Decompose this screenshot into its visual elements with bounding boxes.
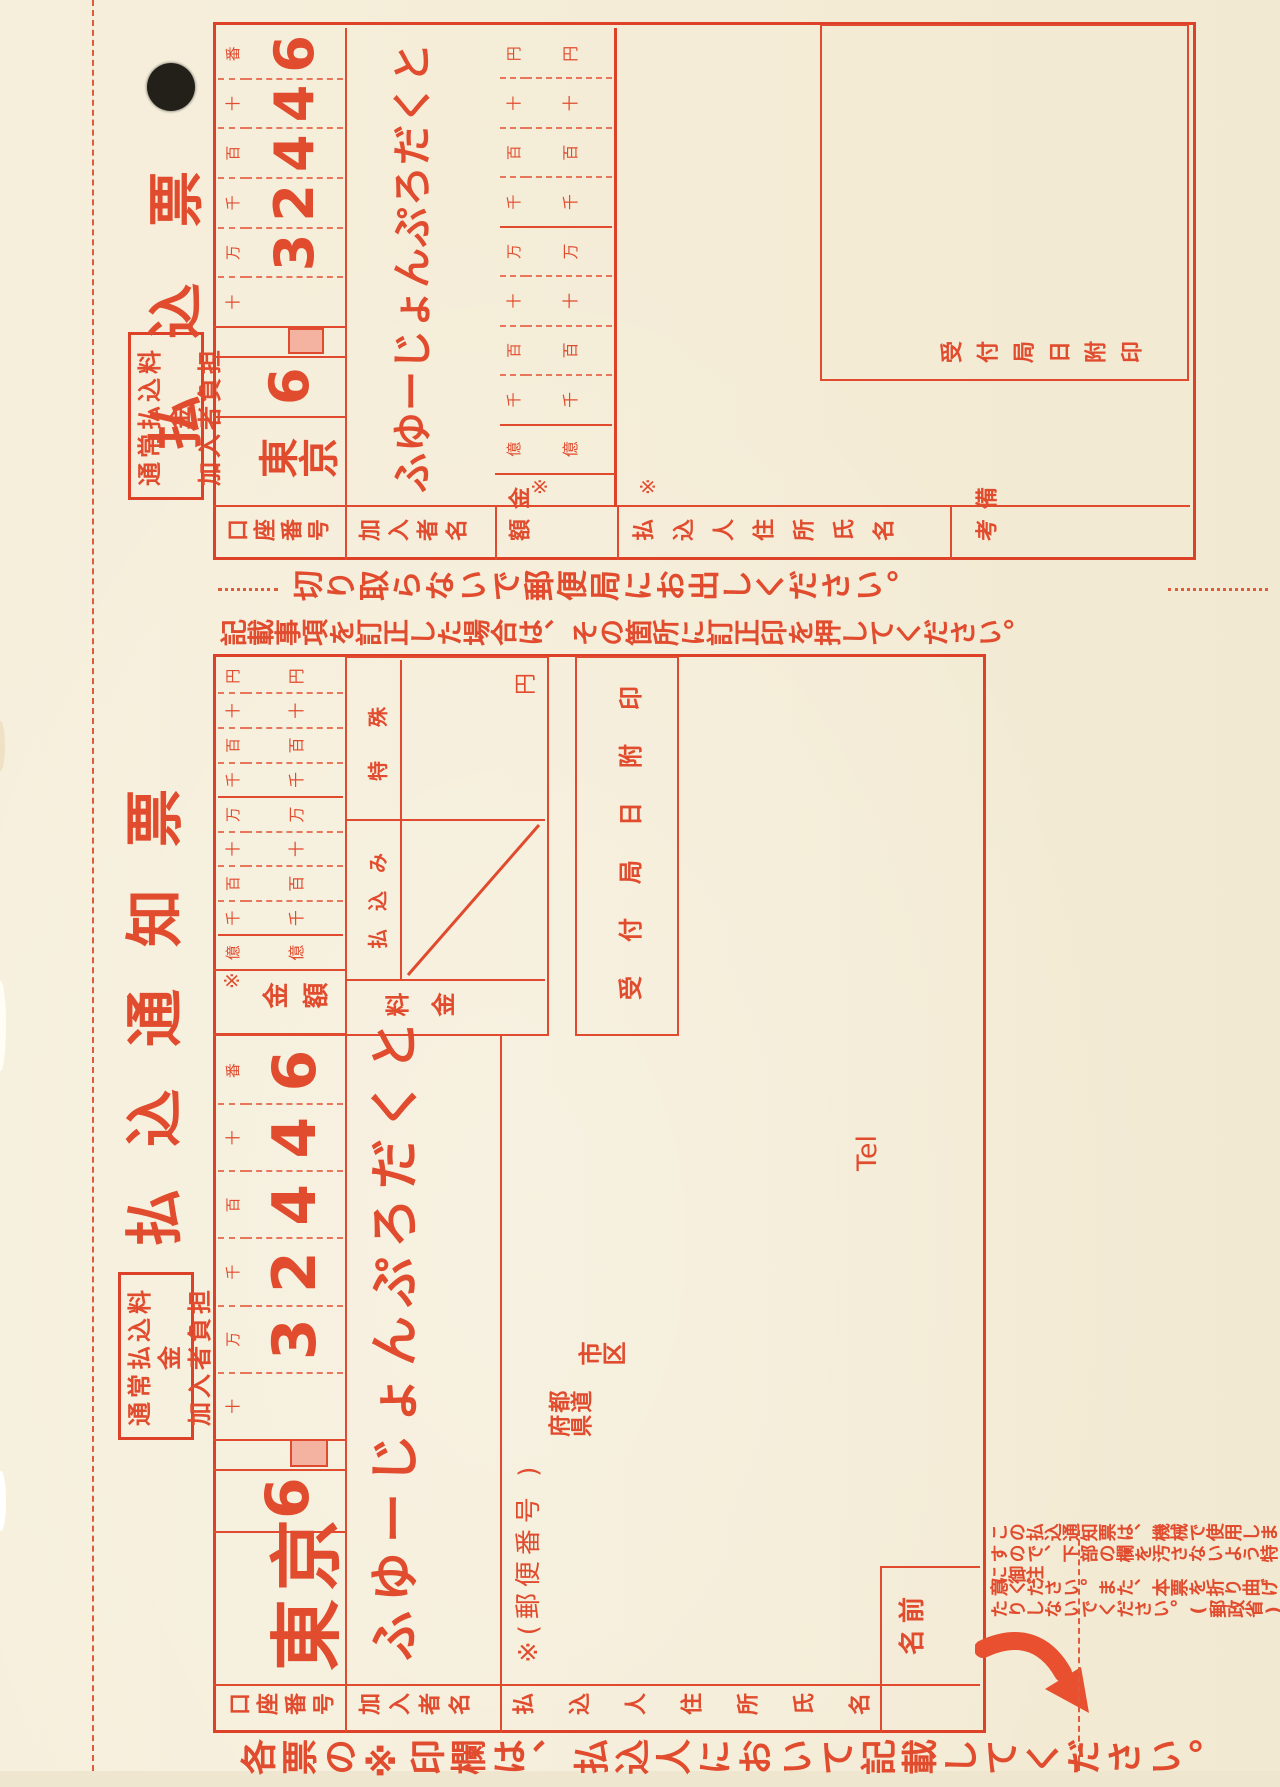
left-label-account: 口座番号	[228, 1691, 340, 1723]
machine-notice-line1: この払込通知票は、機械で使用しますので、下部の欄を汚さないよう特に御注	[990, 1523, 1280, 1587]
torn-edge-mark1	[0, 1471, 6, 1531]
right-account-prefix: 6	[258, 367, 321, 405]
right-amt-b1	[495, 473, 615, 475]
right-label-account: 口座番号	[226, 517, 341, 549]
scanned-payment-form-page: { "ink_color": "#e14b2e", "paper_color":…	[0, 0, 1280, 1771]
left-acct-b2	[213, 1469, 345, 1471]
perf-dots-top	[218, 588, 278, 591]
torn-edge-mark3	[0, 721, 5, 771]
left-acct-b1	[213, 1531, 345, 1533]
fill-note: 各票の※印欄は、払込人において記載してください。	[240, 1735, 1270, 1787]
right-strip-div3	[617, 507, 619, 560]
left-account-separator-box	[290, 1439, 328, 1467]
right-label-subscriber: 加入者名	[358, 517, 490, 549]
right-label-amount: 金 額	[508, 485, 612, 549]
left-fee-b1	[345, 979, 545, 981]
punch-hole	[147, 63, 195, 111]
transfer-form-sheet: 通常払込料金 加入者負担 払込通知票 口座番号 加入者名 払込人住所氏名 東京 …	[0, 0, 1280, 1771]
left-name-cell-topline	[880, 1566, 882, 1733]
left-city: 市区	[578, 1338, 638, 1373]
right-strip-div1	[345, 507, 347, 560]
ministry-credit: (郵政省)	[1188, 1600, 1280, 1621]
left-acct-b3	[213, 1439, 345, 1441]
right-account-place-headers: 十万千百十番	[218, 30, 246, 326]
left-slip-title: 払込通知票	[108, 747, 192, 1247]
left-account-office: 東京	[248, 1511, 353, 1671]
left-label-strip-divider2	[500, 1686, 502, 1733]
right-label-payer: 払込人住所氏名	[632, 517, 942, 549]
left-special-yen: 円	[508, 673, 540, 695]
left-prefecture: 都道府県	[548, 1393, 612, 1441]
left-label-strip-border	[213, 1684, 980, 1686]
right-acct-b2	[213, 356, 345, 358]
right-acct-b1	[213, 416, 345, 418]
left-account-digits[interactable]: 32446	[246, 1038, 343, 1439]
left-tel[interactable]: Tel	[852, 1135, 883, 1171]
left-label-strip-divider	[345, 1686, 347, 1733]
left-fee-b2	[345, 819, 545, 821]
right-amount-place-headers: 億千百十万千百十円	[500, 30, 526, 473]
right-account-office: 東京	[258, 433, 348, 491]
right-account-digits[interactable]: 32446	[246, 30, 343, 326]
right-strip-div4	[950, 507, 952, 560]
left-payer-topline	[500, 1036, 502, 1686]
left-stamp-box[interactable]: 受付局日附印	[575, 656, 679, 1036]
right-amount-input-boxes[interactable]: 億千百十万千百十円	[526, 30, 612, 473]
left-name-label[interactable]: 名前	[892, 1591, 929, 1655]
left-account-prefix: 6	[253, 1477, 323, 1519]
perforation-notice-text: 切り取らないで郵便局にお出しください。	[292, 571, 919, 607]
left-amount-input-boxes[interactable]: 億千百十万千百十円	[246, 660, 343, 969]
right-account-separator-box	[288, 328, 324, 354]
diagonal-slash	[402, 821, 543, 979]
left-amt-border	[213, 1033, 345, 1036]
left-amount-place-headers: 億千百十万千百十円	[218, 660, 246, 969]
left-amt-border2	[213, 969, 345, 971]
left-subscriber-name: ふゆーじょんぷろだくと	[355, 1012, 427, 1661]
perforation-notice: 切り取らないで郵便局にお出しください。	[292, 566, 1152, 611]
right-label-remarks: 備 考	[975, 485, 1175, 549]
left-label-payment: 払込み	[362, 835, 391, 949]
perf-dots-bottom	[1168, 588, 1268, 591]
attention-arrow-icon	[975, 1629, 1095, 1729]
left-label-special: 特殊	[362, 673, 391, 781]
left-label-amount: 金額	[262, 979, 352, 1016]
left-stamp-label: 受付局日附印	[611, 658, 646, 1000]
fee-box-left-line2: 加入者負担	[185, 1281, 215, 1431]
fee-box-left: 通常払込料金 加入者負担	[118, 1272, 194, 1440]
torn-edge-mark2	[0, 981, 6, 1071]
correction-notice: 記載事項を訂正した場合は、その箇所に訂正印を押してください。	[220, 616, 1180, 655]
right-slip-title: 払込票	[132, 115, 213, 451]
right-stamp-box[interactable]: 受付局日附印	[820, 24, 1189, 381]
machine-notice-line2: 意ください。また、本票を折り曲げたりしないでください。(郵政省)	[990, 1579, 1280, 1621]
left-account-place-headers: 十万千百十番	[218, 1038, 246, 1439]
right-subscriber-name: ふゆーじょんぷろだくと	[380, 42, 438, 493]
top-tear-line	[92, 0, 94, 1771]
left-label-fee: 料金	[385, 989, 505, 1024]
right-amount-asterisk: ※	[528, 478, 552, 495]
right-stamp-label: 受付局日附印	[940, 339, 1180, 371]
left-label-subscriber: 加入者名	[358, 1691, 493, 1723]
left-amount-asterisk: ※	[220, 972, 244, 989]
left-payment-cell[interactable]	[402, 821, 543, 979]
right-acct-b3	[213, 326, 345, 328]
left-postal-line[interactable]: ※(郵便番号 )	[508, 1461, 545, 1663]
right-strip-div2	[495, 507, 497, 560]
left-name-cell-rightline	[880, 1566, 980, 1568]
fee-box-left-line1: 通常払込料金	[125, 1281, 185, 1431]
